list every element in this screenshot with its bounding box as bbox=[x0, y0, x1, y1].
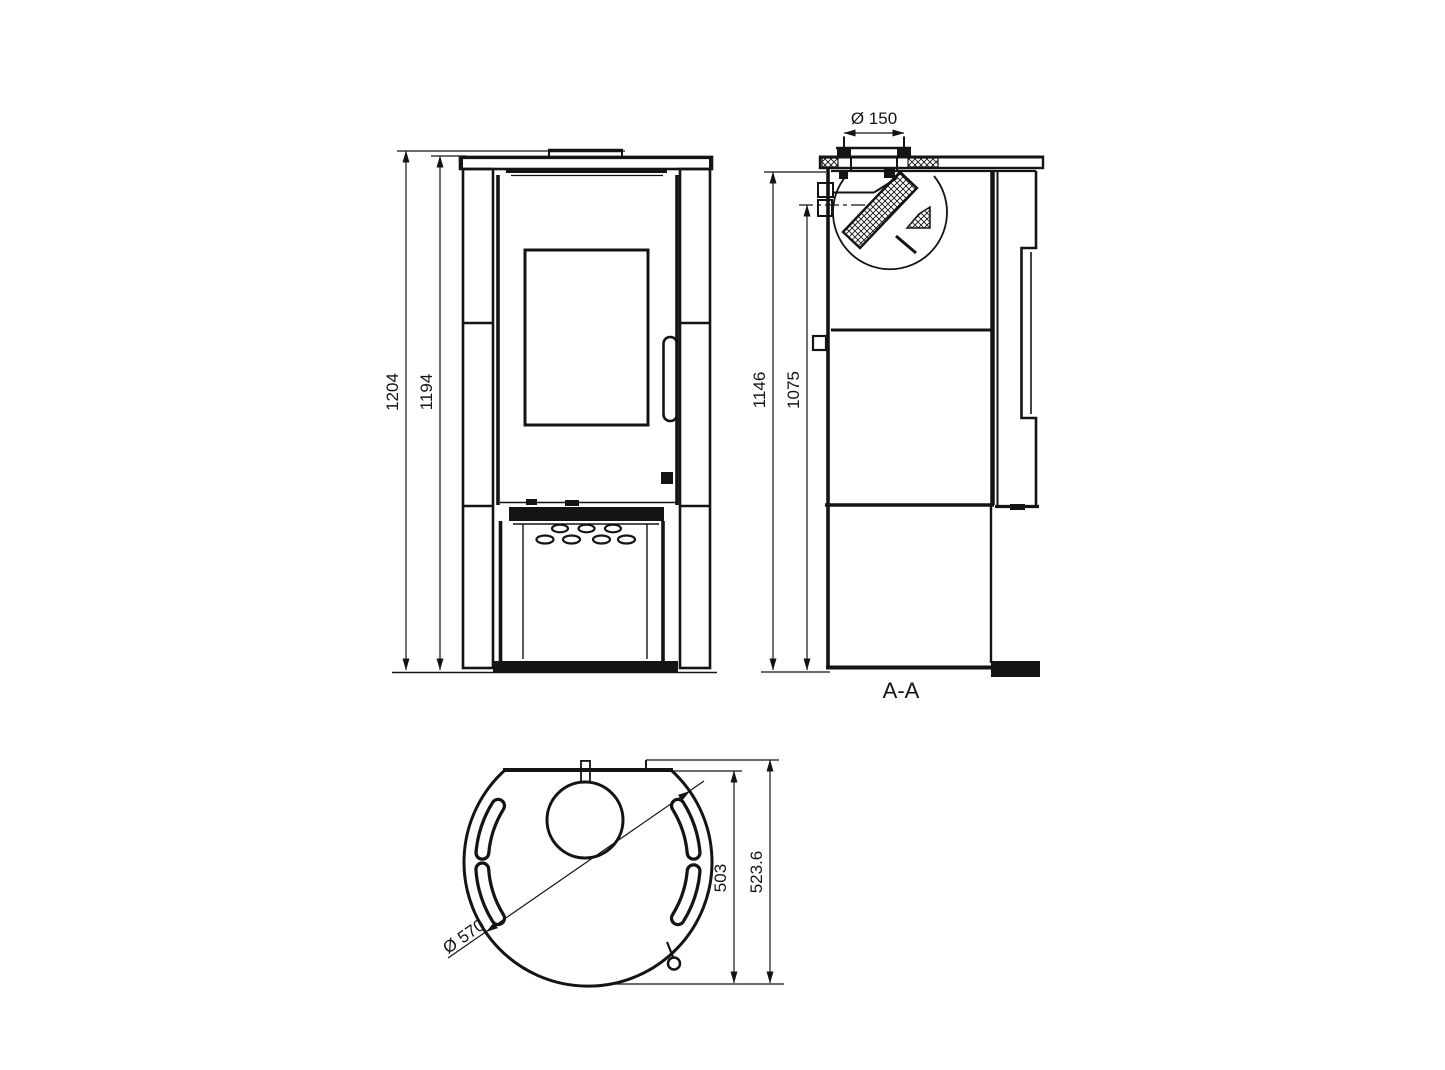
front-view: 1204 1194 bbox=[383, 151, 717, 673]
top-plate-section bbox=[819, 157, 1044, 171]
door-latch-block bbox=[661, 472, 673, 484]
lower-compartment bbox=[493, 507, 678, 672]
right-column bbox=[680, 169, 710, 668]
section-body bbox=[813, 167, 1040, 677]
door-profile bbox=[1022, 171, 1037, 505]
top-plate-front bbox=[459, 157, 713, 176]
plan-diameter-label: Ø 570 bbox=[439, 915, 488, 957]
section-label: A-A bbox=[883, 678, 920, 703]
plan-view: Ø 570 503 523.6 bbox=[439, 760, 784, 986]
base-bar bbox=[493, 661, 678, 672]
section-view: 1146 1075 Ø 150 bbox=[750, 109, 1044, 703]
front-total-height-label: 1204 bbox=[383, 373, 402, 411]
front-body-height-label: 1194 bbox=[417, 374, 436, 411]
flue-outlet-plan bbox=[547, 760, 623, 858]
vent-grille bbox=[537, 525, 636, 544]
shelf-bar bbox=[509, 507, 664, 521]
door-handle bbox=[664, 337, 678, 421]
air-slots bbox=[482, 806, 693, 918]
plan-overall-depth-label: 523.6 bbox=[747, 851, 766, 894]
rear-air-stub bbox=[813, 336, 826, 350]
detail-bubble bbox=[833, 169, 947, 269]
section-flue-axis-height-label: 1075 bbox=[784, 371, 803, 409]
door-window bbox=[525, 250, 648, 425]
left-column bbox=[463, 169, 493, 668]
baffle-hatch bbox=[843, 172, 917, 248]
fire-door bbox=[498, 175, 677, 506]
technical-drawing-page: 1204 1194 bbox=[0, 0, 1445, 1070]
front-foot bbox=[991, 661, 1040, 677]
section-overall-height-label: 1146 bbox=[750, 372, 769, 409]
stove-technical-drawing: 1204 1194 bbox=[0, 0, 1445, 1070]
flue-diameter-label: Ø 150 bbox=[851, 109, 897, 128]
flue-collar-section bbox=[836, 137, 911, 171]
plan-body-depth-label: 503 bbox=[711, 864, 730, 892]
